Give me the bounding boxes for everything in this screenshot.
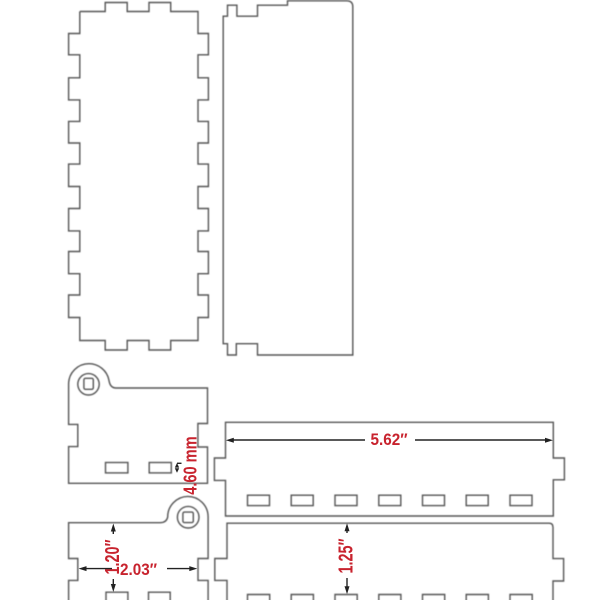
svg-text:4.60 mm: 4.60 mm [179,436,200,494]
svg-text:1.25″: 1.25″ [336,538,358,573]
svg-text:2.03″: 2.03″ [120,560,157,579]
svg-text:5.62″: 5.62″ [371,430,408,449]
